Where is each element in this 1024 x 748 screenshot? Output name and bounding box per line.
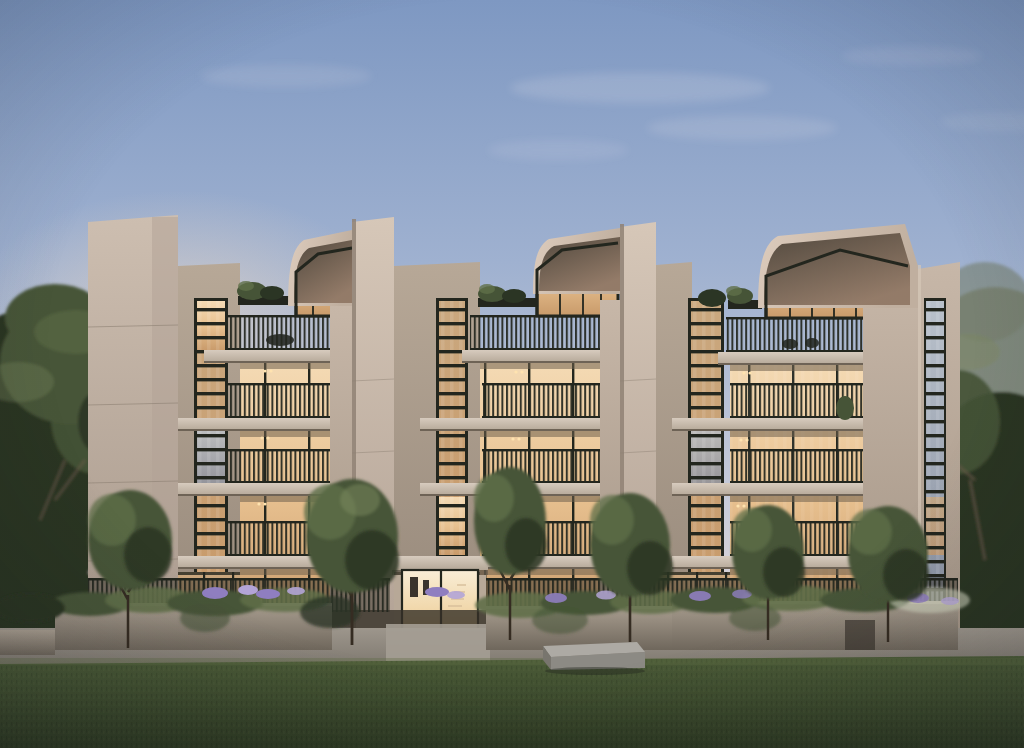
vignette <box>0 0 1024 748</box>
render-canvas <box>0 0 1024 748</box>
architectural-render: Dusk architectural rendering of a five-s… <box>0 0 1024 748</box>
